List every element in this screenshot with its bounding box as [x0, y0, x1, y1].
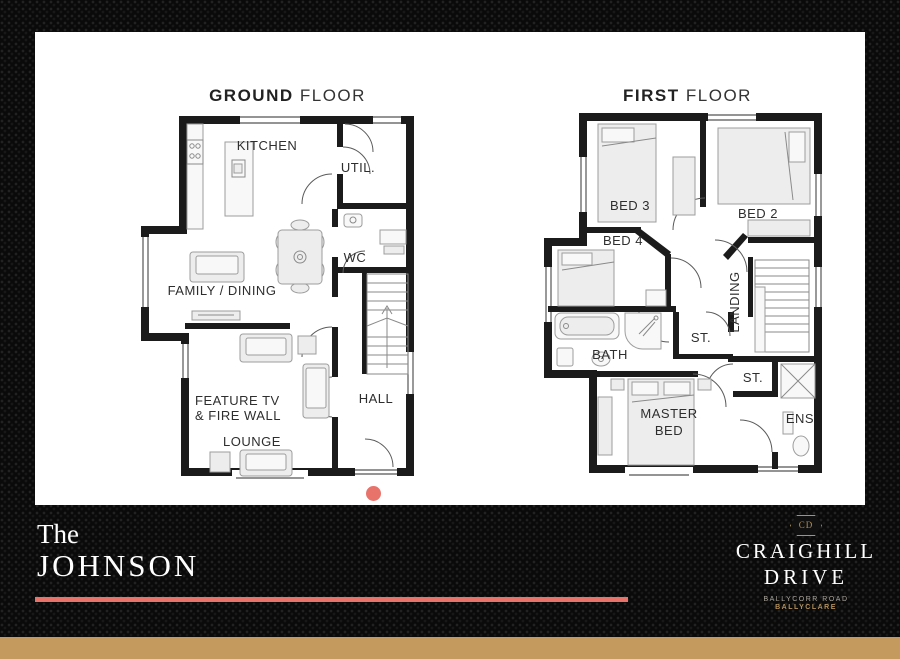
- label-bath: BATH: [592, 347, 628, 362]
- tv-unit: [192, 311, 240, 320]
- brand-monogram-badge: CD: [790, 515, 822, 536]
- label-util: UTIL.: [341, 160, 375, 175]
- label-bed2: BED 2: [738, 206, 778, 221]
- label-bed4: BED 4: [603, 233, 643, 248]
- lounge-sofa-bottom: [210, 450, 292, 476]
- label-master-2: BED: [655, 423, 683, 438]
- family-sofa: [190, 252, 244, 282]
- brand-name-line2: DRIVE: [726, 565, 886, 590]
- house-name: The JOHNSON: [37, 520, 199, 583]
- lounge-chaise: [303, 364, 329, 418]
- label-wc: WC: [344, 250, 367, 265]
- label-feature-tv-2: & FIRE WALL: [195, 408, 281, 423]
- label-family-dining: FAMILY / DINING: [168, 283, 277, 298]
- accent-divider-line: [35, 597, 628, 602]
- label-st1: ST.: [691, 330, 711, 345]
- lounge-sofa-top: [240, 334, 292, 362]
- location-marker-dot: [366, 486, 381, 501]
- dining-table: [276, 220, 324, 293]
- label-master-1: MASTER: [640, 406, 697, 421]
- master-bay-window: [625, 467, 693, 483]
- label-hall: HALL: [359, 391, 394, 406]
- brand-address-line2: BALLYCLARE: [726, 604, 886, 611]
- house-name-prefix: The: [37, 520, 199, 549]
- brand-address-line1: BALLYCORR ROAD: [726, 596, 886, 603]
- first-floor-title: FIRST FLOOR: [540, 86, 835, 106]
- label-lounge: LOUNGE: [223, 434, 281, 449]
- ground-floor-plan: KITCHEN UTIL. WC FAMILY / DINING FEATURE…: [140, 112, 425, 507]
- brand-name-line1: CRAIGHILL: [726, 539, 886, 564]
- house-name-main: JOHNSON: [37, 549, 199, 582]
- floorplan-panel: GROUND FLOOR FIRST FLOOR: [35, 32, 865, 505]
- lounge-side-table: [298, 336, 316, 354]
- first-floor-plan: BED 3 BED 2 BED 4 LANDING BATH ST. ST. M…: [543, 112, 828, 507]
- first-floor-title-light: FLOOR: [686, 86, 752, 105]
- label-st2: ST.: [743, 370, 763, 385]
- first-floor-title-bold: FIRST: [623, 86, 680, 105]
- brand-block: CD CRAIGHILL DRIVE BALLYCORR ROAD BALLYC…: [726, 515, 886, 611]
- label-feature-tv-1: FEATURE TV: [195, 393, 280, 408]
- label-ens: ENS: [786, 411, 814, 426]
- gold-footer-bar: [0, 637, 900, 659]
- ground-floor-title-bold: GROUND: [209, 86, 294, 105]
- label-kitchen: KITCHEN: [237, 138, 298, 153]
- kitchen-counter: [187, 124, 203, 229]
- label-landing: LANDING: [727, 271, 742, 332]
- ground-floor-title: GROUND FLOOR: [145, 86, 430, 106]
- ground-floor-title-light: FLOOR: [300, 86, 366, 105]
- kitchen-island: [225, 142, 253, 216]
- label-bed3: BED 3: [610, 198, 650, 213]
